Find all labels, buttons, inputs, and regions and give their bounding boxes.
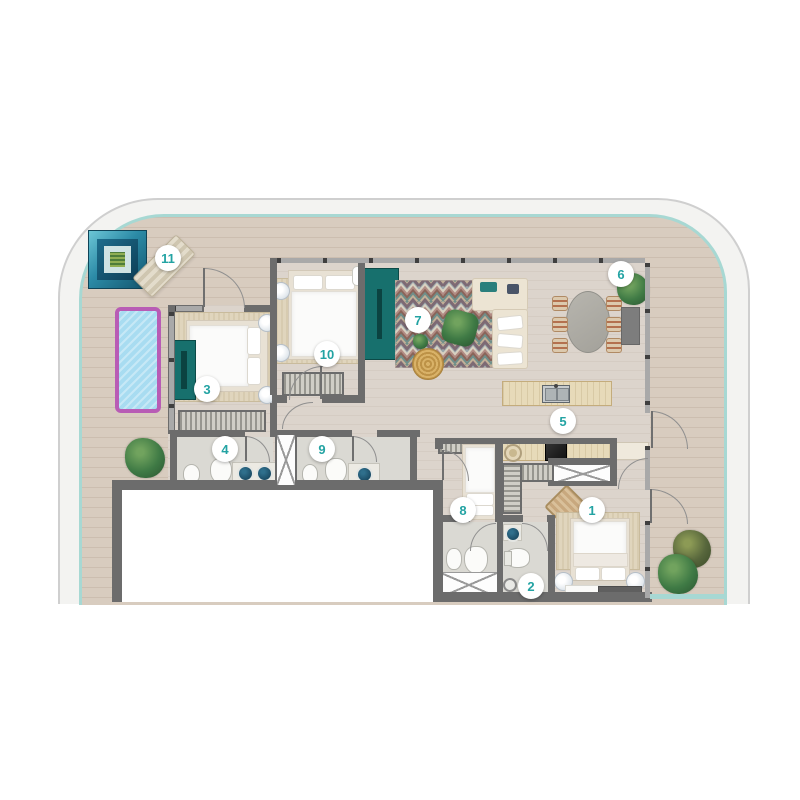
marker-label: 7 — [414, 313, 421, 328]
terrace-plant-icon — [125, 438, 165, 478]
floor-plan: 1 2 3 4 5 6 7 8 9 10 11 — [0, 0, 800, 800]
pillow — [247, 327, 261, 355]
lap-pool — [115, 307, 161, 413]
marker-2: 2 — [518, 573, 544, 599]
wall-segment — [495, 443, 503, 520]
door-leaf — [650, 489, 652, 523]
appliance-dial — [509, 449, 517, 457]
wall-segment — [433, 480, 443, 594]
tv-screen — [377, 289, 382, 339]
sink-basin — [557, 388, 569, 401]
dining-chair — [606, 338, 622, 353]
marker-label: 11 — [161, 251, 175, 266]
wall-segment — [112, 480, 122, 602]
pillow — [497, 351, 524, 366]
wall-segment — [548, 515, 555, 602]
marker-label: 5 — [559, 414, 566, 429]
door-leaf — [352, 436, 354, 461]
kitchen-closet — [520, 463, 555, 482]
bedroom3-dresser — [174, 340, 196, 400]
dining-chair — [552, 338, 568, 353]
window-wall — [645, 263, 650, 413]
wall-art-center — [110, 252, 125, 267]
marker-9: 9 — [309, 436, 335, 462]
blanket-fold — [573, 553, 628, 567]
wall-segment — [170, 430, 245, 437]
marker-11: 11 — [155, 245, 181, 271]
toilet-tank — [504, 551, 512, 566]
tv-wardrobe-unit — [364, 268, 399, 360]
marker-10: 10 — [314, 341, 340, 367]
sink-basin — [545, 388, 557, 401]
marker-label: 1 — [588, 503, 595, 518]
sofa-right-arm — [492, 309, 528, 369]
void-area — [122, 490, 433, 602]
pouf — [412, 348, 444, 380]
pillow — [496, 333, 523, 349]
marker-8: 8 — [450, 497, 476, 523]
bedroom3-wardrobe — [178, 410, 266, 432]
balcony-rail — [650, 594, 727, 599]
marker-label: 8 — [459, 503, 466, 518]
dining-chair — [552, 296, 568, 311]
marker-label: 10 — [320, 347, 334, 362]
kitchen-pantry — [502, 463, 522, 514]
window-wall — [277, 258, 645, 263]
duvet — [189, 325, 249, 387]
wall-segment — [322, 395, 365, 403]
wall-segment — [358, 258, 365, 398]
wall-segment — [610, 444, 617, 486]
pillow — [293, 275, 323, 290]
wall-segment — [497, 522, 503, 596]
terrace-plant-icon — [658, 554, 698, 594]
pillow — [496, 315, 523, 332]
pillow — [247, 357, 261, 385]
island-sink — [542, 385, 570, 403]
wall-segment — [495, 515, 523, 522]
marker-6: 6 — [608, 261, 634, 287]
marker-label: 3 — [203, 382, 210, 397]
teal-cushion — [480, 282, 497, 292]
duvet — [465, 447, 495, 493]
sofa-tray — [507, 284, 519, 294]
marker-label: 6 — [617, 267, 624, 282]
wall-segment — [270, 258, 277, 312]
sofa-top-arm — [472, 278, 528, 311]
wall-segment — [433, 592, 652, 602]
door-leaf — [203, 268, 205, 307]
window-wall — [172, 306, 202, 311]
appliance-icon — [504, 444, 522, 462]
small-plant-icon — [413, 334, 428, 349]
bidet — [446, 548, 462, 570]
pillow — [575, 567, 600, 581]
window-wall — [645, 521, 650, 598]
dresser-detail — [181, 351, 187, 389]
door-leaf — [651, 411, 653, 448]
pillow — [325, 275, 355, 290]
dining-chair — [606, 317, 622, 332]
marker-3: 3 — [194, 376, 220, 402]
marker-1: 1 — [579, 497, 605, 523]
door-leaf — [245, 436, 247, 461]
shaft-box — [275, 433, 297, 487]
marker-7: 7 — [405, 307, 431, 333]
basin-icon — [505, 526, 521, 542]
sideboard — [621, 307, 640, 345]
toilet — [504, 548, 530, 568]
dining-table — [566, 291, 610, 353]
wall-segment — [435, 444, 443, 449]
wall-segment — [272, 395, 287, 403]
bedroom1-bed — [570, 518, 630, 590]
dining-chair — [552, 317, 568, 332]
marker-5: 5 — [550, 408, 576, 434]
shower-head-icon — [503, 578, 517, 592]
wall-segment — [270, 403, 277, 430]
door-leaf — [442, 450, 444, 480]
marker-label: 4 — [221, 442, 228, 457]
wall-segment — [270, 312, 277, 395]
wall-segment — [435, 438, 617, 444]
marker-4: 4 — [212, 436, 238, 462]
faucet-icon — [554, 384, 558, 388]
marker-label: 9 — [318, 442, 325, 457]
window-wall — [169, 312, 174, 430]
door-leaf — [320, 366, 322, 399]
pillow — [601, 567, 626, 581]
wall-segment — [548, 481, 617, 486]
marker-label: 2 — [527, 579, 534, 594]
wall-segment — [548, 458, 617, 463]
kitchen-island — [502, 381, 612, 406]
